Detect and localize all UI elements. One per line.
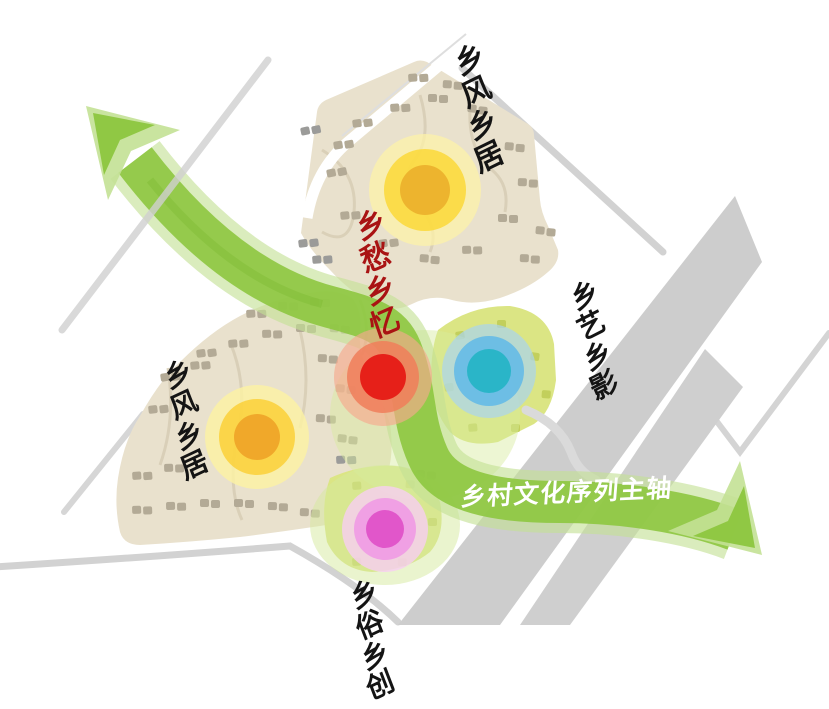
hotspot-center xyxy=(334,328,432,426)
map-canvas xyxy=(0,0,829,709)
village-culture-plan-diagram: 乡风乡居 乡艺乡影 乡风乡居 乡俗乡创 乡愁乡忆 乡村文化序列主轴 xyxy=(0,0,829,709)
hotspot-west xyxy=(205,385,309,489)
hotspot-north xyxy=(369,134,481,246)
hotspot-east xyxy=(442,324,536,418)
hotspot-south xyxy=(342,486,428,572)
